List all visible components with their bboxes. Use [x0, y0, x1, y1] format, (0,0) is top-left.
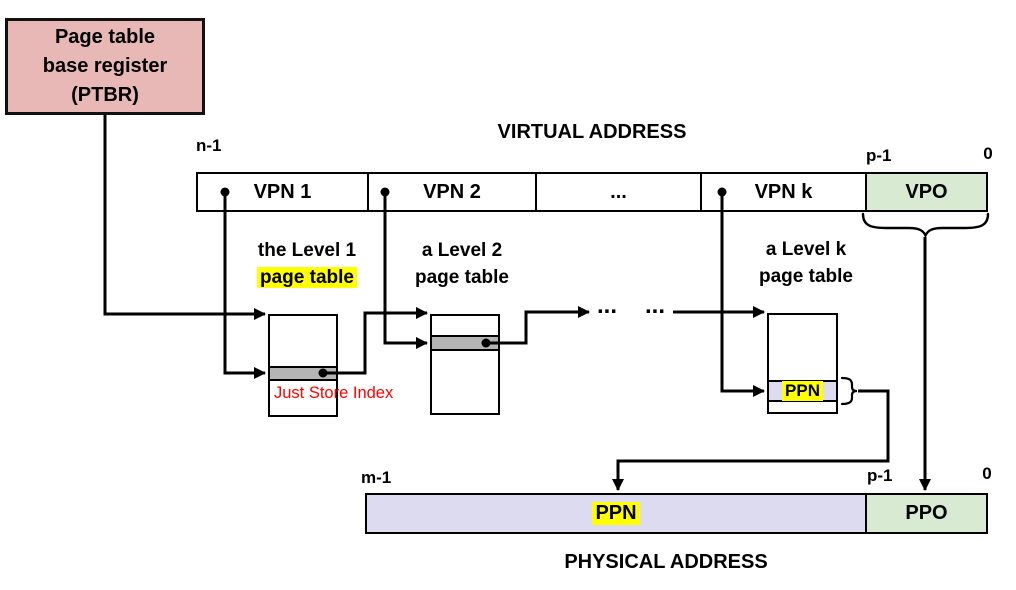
ptbr-box: Page table base register (PTBR) — [5, 18, 205, 115]
level1-caption-highlight: page table — [257, 267, 357, 288]
ptbr-label-line2: base register — [43, 52, 168, 81]
ptbr-label-line1: Page table — [55, 23, 155, 52]
level1-caption-line1: the Level 1 — [227, 237, 387, 264]
levelk-ppn-entry-row: PPN — [767, 380, 838, 402]
virtual-address-bar: VPN 1 VPN 2 ... VPN k VPO — [196, 172, 988, 212]
va-field-ellipsis: ... — [535, 174, 700, 210]
levelk-ppn-brace — [842, 378, 857, 404]
multilevel-page-table-diagram: Page table base register (PTBR) VIRTUAL … — [0, 0, 1016, 590]
levelk-caption: a Level k page table — [726, 236, 886, 290]
level1-entry-row — [268, 366, 338, 381]
pa-field-ppo: PPO — [865, 495, 986, 532]
ptbr-label-line3: (PTBR) — [71, 81, 139, 110]
pa-field-ppn: PPN — [367, 495, 865, 532]
pa-bit-label-0: 0 — [978, 464, 996, 484]
vpo-underbrace — [863, 214, 988, 236]
va-field-vpn2: VPN 2 — [367, 174, 535, 210]
va-field-vpnk: VPN k — [700, 174, 865, 210]
level1-caption: the Level 1 page table — [227, 237, 387, 291]
pa-bit-label-p-1: p-1 — [867, 466, 893, 486]
va-field-vpn1: VPN 1 — [198, 174, 367, 210]
va-bit-label-n-1: n-1 — [196, 136, 222, 156]
just-store-index-annotation: Just Store Index — [274, 384, 393, 403]
physical-address-bar: PPN PPO — [365, 493, 988, 534]
pa-ppn-label: PPN — [592, 502, 639, 525]
arrow-vpnk-to-levelk-entry — [722, 192, 764, 391]
level2-caption: a Level 2 page table — [382, 237, 542, 291]
pa-bit-label-m-1: m-1 — [361, 468, 391, 488]
level2-page-table-box — [430, 314, 500, 415]
level2-caption-line2: page table — [382, 264, 542, 291]
levelk-ppn-label: PPN — [782, 381, 823, 401]
level1-caption-line2: page table — [227, 264, 387, 291]
arrow-level2-to-ellipsis — [486, 312, 589, 343]
physical-address-title: PHYSICAL ADDRESS — [516, 551, 816, 574]
level2-caption-line1: a Level 2 — [382, 237, 542, 264]
chain-ellipsis-1: ... — [589, 294, 625, 318]
virtual-address-title: VIRTUAL ADDRESS — [442, 121, 742, 144]
va-bit-label-p-1: p-1 — [866, 146, 892, 166]
chain-ellipsis-2: ... — [637, 294, 673, 318]
va-field-vpo: VPO — [865, 174, 986, 210]
levelk-caption-line2: page table — [726, 263, 886, 290]
arrow-levelk-ppn-to-physical-ppn — [618, 391, 888, 490]
va-bit-label-0: 0 — [979, 144, 997, 164]
levelk-caption-line1: a Level k — [726, 236, 886, 263]
arrow-level1-to-level2 — [323, 313, 427, 373]
level2-entry-row — [430, 335, 500, 351]
